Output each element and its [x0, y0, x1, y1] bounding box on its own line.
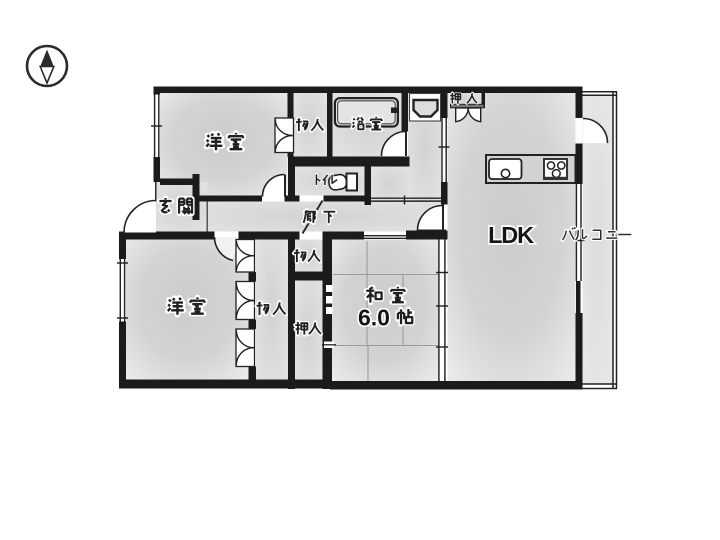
svg-text:6.0: 6.0: [358, 304, 390, 330]
svg-text:LDK: LDK: [488, 222, 534, 248]
